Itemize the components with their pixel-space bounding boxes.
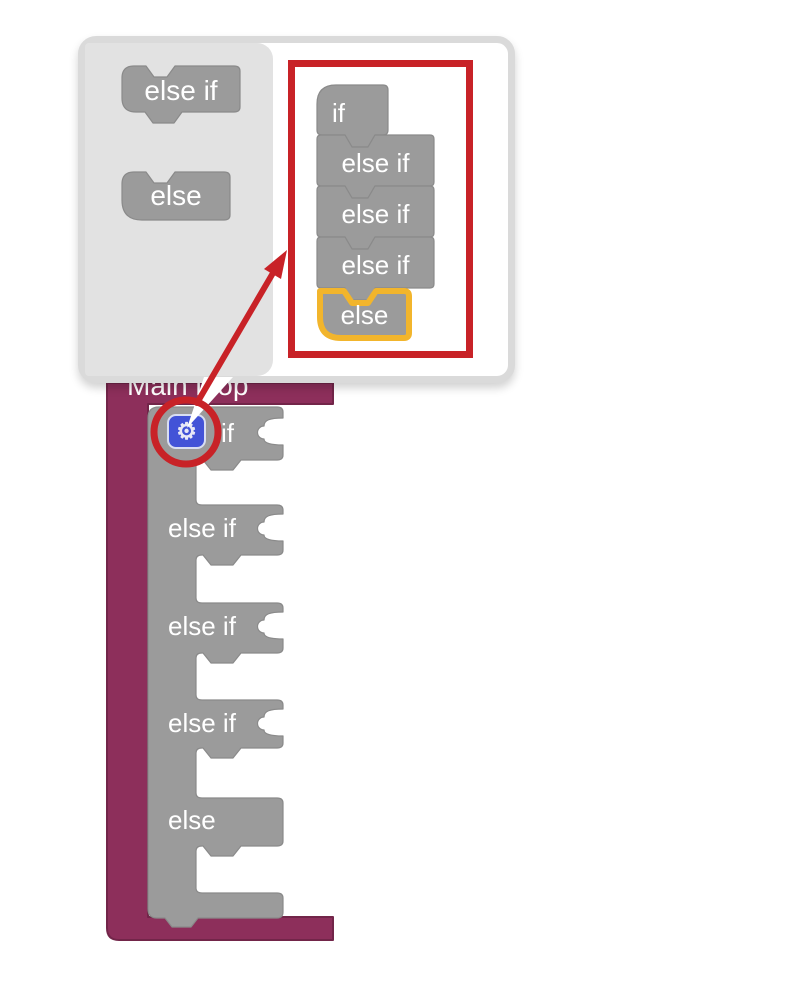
popup-tail — [187, 377, 233, 428]
